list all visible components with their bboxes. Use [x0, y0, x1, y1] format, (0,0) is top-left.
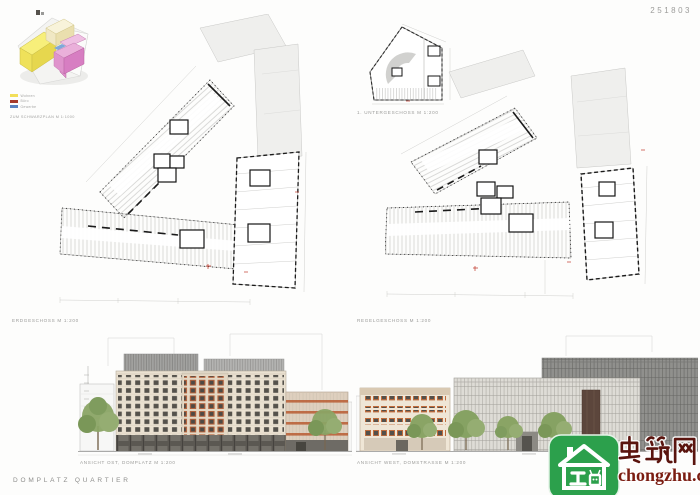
legend-item: Gewerbe — [10, 105, 36, 109]
legend-label: Büro — [21, 99, 29, 103]
legend-swatch-yellow — [10, 94, 18, 97]
chongzhu-logo-icon — [548, 434, 620, 495]
legend-label: Wohnen — [21, 94, 35, 98]
legend-item: Wohnen — [10, 94, 36, 98]
massing-legend: Wohnen Büro Gewerbe — [10, 94, 36, 109]
presentation-board: 251803 — [0, 0, 700, 495]
legend-swatch-blue — [10, 105, 18, 108]
upper-floor-plan-drawing — [385, 46, 653, 310]
penthouse-volumes — [124, 354, 284, 371]
site-url: chongzhu.cn — [618, 465, 700, 486]
upper-floor-plan-caption: REGELGESCHOSS M 1:200 — [357, 318, 431, 323]
main-facade — [116, 371, 286, 451]
entry-number: 251803 — [650, 6, 692, 15]
project-title: DOMPLATZ QUARTIER — [13, 477, 131, 484]
east-elevation-caption: ANSICHT OST, DOMPLATZ M 1:200 — [80, 460, 176, 465]
legend-item: Büro — [10, 99, 36, 103]
west-elevation-caption: ANSICHT WEST, DOMSTRASSE M 1:200 — [357, 460, 466, 465]
legend-swatch-red — [10, 100, 18, 103]
east-elevation-drawing — [78, 332, 352, 462]
legend-label: Gewerbe — [21, 105, 37, 109]
ground-floor-plan-caption: ERDGESCHOSS M 1:200 — [12, 318, 79, 323]
ground-floor-plan-drawing — [58, 14, 310, 310]
site-name-chinese — [618, 436, 698, 465]
existing-building — [360, 388, 450, 451]
